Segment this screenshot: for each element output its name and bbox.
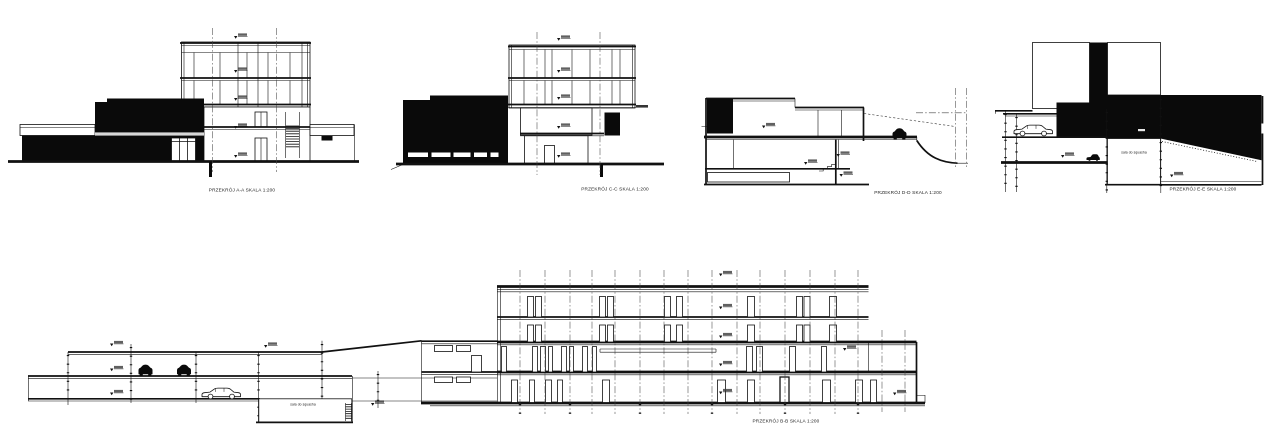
architectural-sections-sheet: PRZEKRÓJ A-A SKALA 1:200 PRZEKRÓJ C-C SK… [0, 0, 1280, 444]
level-marker-icon [893, 390, 907, 395]
level-marker-icon [234, 33, 248, 38]
caption-section-d-d: PRZEKRÓJ D-D SKALA 1:200 [874, 189, 942, 195]
level-marker-icon [557, 35, 571, 40]
section-a-a: PRZEKRÓJ A-A SKALA 1:200 [8, 28, 359, 193]
stair-section [819, 164, 836, 171]
level-marker-icon [1138, 129, 1145, 131]
section-e-e: sala do squasha PRZEKRÓJ E-E SKALA 1:200 [995, 43, 1264, 194]
level-marker-icon [843, 345, 857, 350]
level-marker-icon [110, 390, 124, 395]
section-b-b: sala do squasha [28, 270, 925, 424]
room-label: sala do squasha [290, 403, 316, 407]
car-front-icon [139, 365, 153, 376]
car-front-icon [177, 365, 191, 376]
terrain-line [864, 114, 955, 127]
level-marker-icon [719, 304, 733, 309]
level-marker-icon [840, 171, 854, 176]
section-c-c: PRZEKRÓJ C-C SKALA 1:200 [391, 32, 664, 192]
window-openings-top-floor [528, 297, 837, 318]
door-opening [545, 146, 555, 164]
level-marker-icon [719, 361, 733, 366]
level-marker-icon [110, 366, 124, 371]
car-side-icon [1014, 125, 1053, 136]
caption-section-e-e: PRZEKRÓJ E-E SKALA 1:200 [1170, 186, 1237, 192]
caption-section-b-b: PRZEKRÓJ B-B SKALA 1:200 [753, 418, 820, 424]
level-marker-icon [110, 341, 124, 346]
window-openings-second-floor [528, 325, 837, 342]
ladder [346, 405, 352, 419]
car-front-icon [893, 128, 907, 139]
level-marker-icon [264, 342, 278, 347]
room-label: sala do squasha [1121, 151, 1147, 155]
level-marker-icon [719, 271, 733, 276]
caption-section-c-c: PRZEKRÓJ C-C SKALA 1:200 [581, 186, 649, 192]
garage-ramp [917, 141, 958, 164]
section-d-d: PRZEKRÓJ D-D SKALA 1:200 [702, 88, 969, 195]
level-marker-icon [719, 333, 733, 338]
level-marker-icon [1170, 172, 1184, 177]
sections-drawing: PRZEKRÓJ A-A SKALA 1:200 PRZEKRÓJ C-C SK… [0, 0, 1280, 444]
level-marker-icon [804, 159, 818, 164]
car-side-icon [202, 388, 241, 399]
level-marker-icon [762, 123, 776, 128]
level-marker-icon [1061, 152, 1075, 157]
window-openings-ground-floor [512, 377, 877, 403]
car-side-icon [1087, 154, 1100, 161]
caption-section-a-a: PRZEKRÓJ A-A SKALA 1:200 [209, 187, 276, 193]
